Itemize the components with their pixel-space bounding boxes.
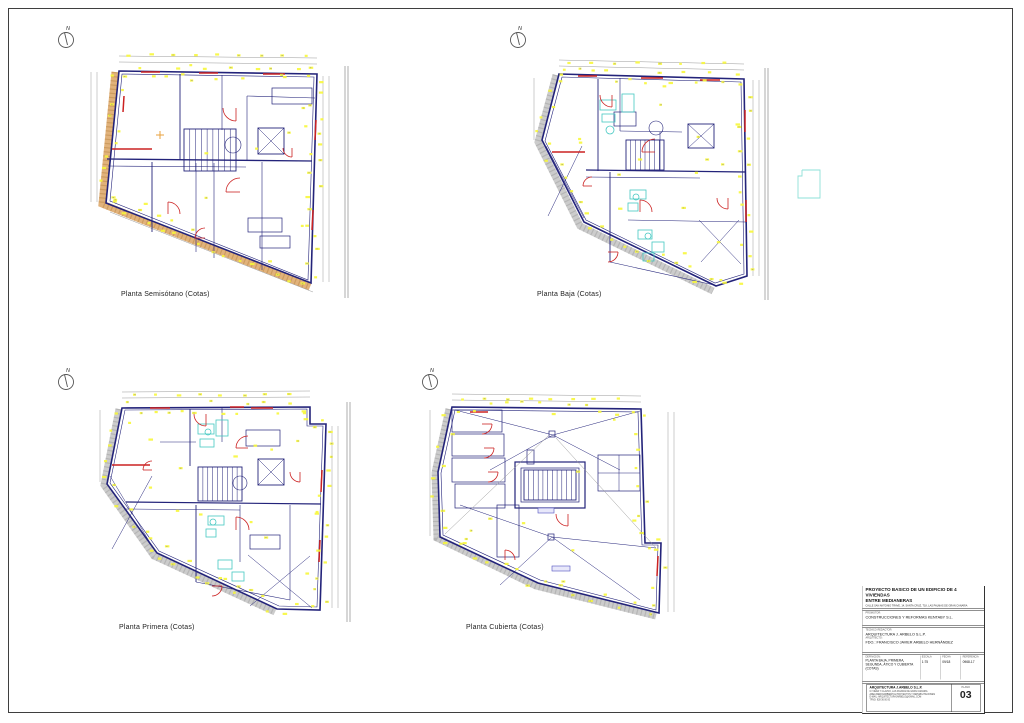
firm-line: TFNO: 928 36 00 00 (870, 698, 949, 701)
plan-label-baja: Planta Baja (Cotas) (537, 291, 602, 298)
plan-label-cubierta: Planta Cubierta (Cotas) (466, 624, 544, 631)
reference-label: REFERENCIA (963, 656, 981, 660)
plan-baja-drawing (534, 60, 820, 300)
scale-label: ESCALA (922, 656, 940, 660)
project-title-2: ENTRE MEDIANERAS (866, 598, 982, 604)
firm-box: ARQUITECTURA J.ARBELO S.L.P. C/ VIERA Y … (867, 684, 981, 712)
svg-text:N: N (66, 368, 70, 374)
scale-value: 1:75 (922, 661, 940, 665)
plano-number: 03 (960, 689, 972, 701)
title-block: PROYECTO BASICO DE UN EDIFICIO DE 4 VIVI… (862, 586, 985, 714)
date-label: FECHA (942, 656, 960, 660)
svg-text:N: N (66, 26, 70, 32)
reference-value: 0968-17 (963, 661, 981, 665)
plan-label-primera: Planta Primera (Cotas) (119, 624, 195, 631)
plan-semisotano-drawing (91, 53, 348, 298)
svg-text:N: N (430, 368, 434, 374)
svg-text:N: N (518, 26, 522, 32)
definition-line: (COTAS) (866, 667, 920, 671)
architect-signature: FDO.: FRANCISCO JAVIER ARBELO HERNÁNDEZ (866, 640, 982, 645)
north-arrow-icon: NNNN (59, 26, 526, 390)
date-value: 09/18 (942, 661, 960, 665)
plan-label-semisotano: Planta Semisótano (Cotas) (121, 291, 210, 298)
plan-primera-drawing (100, 391, 350, 622)
project-title: PROYECTO BASICO DE UN EDIFICIO DE 4 VIVI… (866, 587, 982, 598)
drawing-sheet: NNNN Planta Semisótano (Cotas) Planta Ba… (0, 0, 1024, 723)
plan-cubierta-drawing (430, 394, 674, 616)
promoter-name: CONSTRUCCIONES Y REFORMAS KENTABY S.L. (866, 615, 982, 620)
